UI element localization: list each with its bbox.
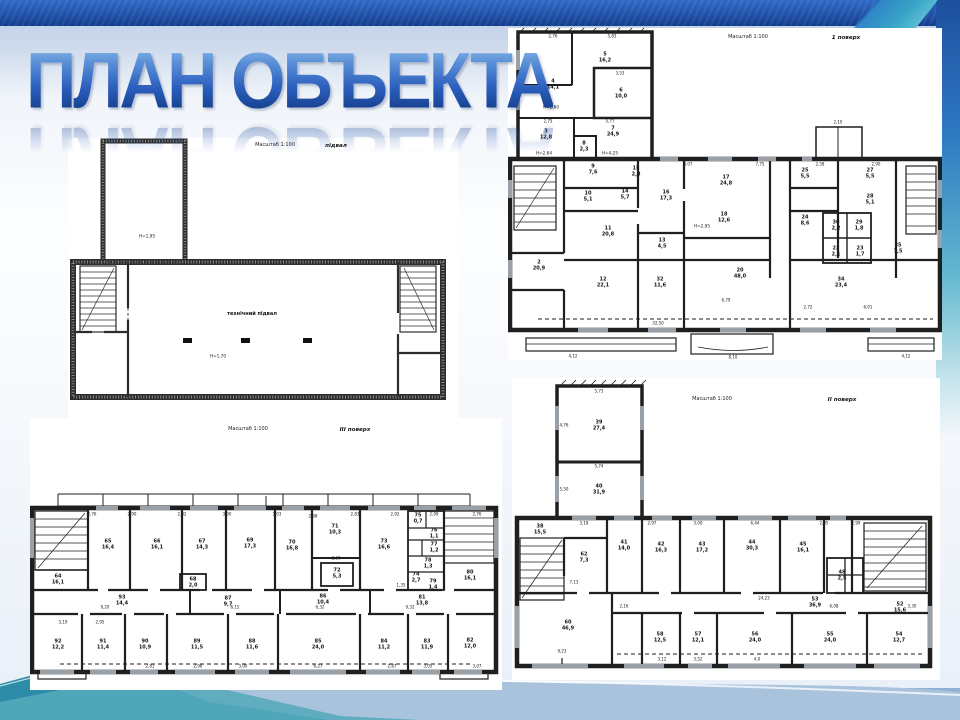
room-label: 35 7,5 bbox=[894, 243, 903, 255]
room-label: 3 12,8 bbox=[540, 129, 552, 141]
dim-label: 3,05 bbox=[424, 665, 433, 670]
room-label: 81 13,8 bbox=[416, 595, 428, 607]
room-label: 91 11,4 bbox=[97, 639, 109, 651]
height-note: Н=2,64 bbox=[536, 152, 552, 157]
room-label: 6 10,0 bbox=[615, 88, 627, 100]
room-label: 70 16,8 bbox=[286, 540, 298, 552]
room-label: 11 20,8 bbox=[602, 226, 614, 238]
room-label: 18 12,6 bbox=[718, 212, 730, 224]
floor-name-label: 1 поверх bbox=[832, 35, 861, 41]
room-label: 71 10,3 bbox=[329, 524, 341, 536]
dim-label: 3,12 bbox=[658, 658, 667, 663]
room-label: 80 16,1 bbox=[464, 570, 476, 582]
dim-label: 6,15 bbox=[231, 606, 240, 611]
floor1-plan-drawing bbox=[508, 28, 942, 360]
dim-label: 2,90 bbox=[872, 163, 881, 168]
room-label: 58 12,5 bbox=[654, 632, 666, 644]
dim-label: 2,98 bbox=[194, 665, 203, 670]
dim-label: 2,76 bbox=[473, 513, 482, 518]
floor1-plan-panel: Масштаб 1:100 1 поверх 4 14,1 5 16,2 6 1… bbox=[508, 28, 942, 360]
floor2-plan-panel: Масштаб 1:100 II поверх 39 27,4 40 31,9 … bbox=[512, 378, 940, 680]
room-label: 88 11,6 bbox=[246, 639, 258, 651]
room-label: 25 5,5 bbox=[801, 168, 810, 180]
height-note: Н=4,25 bbox=[602, 152, 618, 157]
dim-label: 24,23 bbox=[758, 597, 769, 602]
basement-plan-drawing bbox=[68, 138, 458, 420]
dim-label: 4,76 bbox=[560, 424, 569, 429]
dim-label: 3,18 bbox=[580, 522, 589, 527]
dim-label: 2,95 bbox=[96, 621, 105, 626]
dim-label: 2,97 bbox=[648, 522, 657, 527]
room-label: 41 14,0 bbox=[618, 540, 630, 552]
dim-label: 6,32 bbox=[316, 606, 325, 611]
dim-label: 2,92 bbox=[391, 513, 400, 518]
room-label: 67 14,3 bbox=[196, 539, 208, 551]
room-label: 93 14,4 bbox=[116, 595, 128, 607]
dim-label: 2,10 bbox=[834, 121, 843, 126]
room-label: технічний підвал bbox=[227, 312, 277, 318]
room-label: 32 11,6 bbox=[654, 277, 666, 289]
dim-label: 4,0 bbox=[754, 658, 760, 663]
room-label: 30 2,2 bbox=[832, 220, 841, 232]
dim-label: 9,32 bbox=[406, 606, 415, 611]
dim-label: 3,07 bbox=[684, 163, 693, 168]
room-label: 39 27,4 bbox=[593, 420, 605, 432]
dim-label: 2,76 bbox=[88, 513, 97, 518]
room-label: 13 4,5 bbox=[658, 238, 667, 250]
top-blue-band bbox=[0, 0, 960, 26]
room-label: 20 48,0 bbox=[734, 268, 746, 280]
room-label: 64 16,1 bbox=[52, 574, 64, 586]
dim-label: 6,79 bbox=[722, 299, 731, 304]
room-label: 22 2,1 bbox=[832, 246, 841, 258]
dim-label: 5,74 bbox=[595, 465, 604, 470]
room-label: 24 8,6 bbox=[801, 215, 810, 227]
dim-label: 32,50 bbox=[652, 322, 663, 327]
scale-label: Масштаб 1:100 bbox=[228, 427, 268, 433]
room-label: 17 24,8 bbox=[720, 175, 732, 187]
dim-label: 2,83 bbox=[351, 513, 360, 518]
room-label: 12 22,1 bbox=[597, 277, 609, 289]
dim-label: 2,60 bbox=[332, 557, 341, 562]
dim-label: 3,52 bbox=[694, 658, 703, 663]
dim-label: 6,27 bbox=[314, 665, 323, 670]
room-label: 68 2,0 bbox=[189, 577, 198, 589]
basement-plan-panel: Масштаб 1:100 підвал Н=1,95 технічний пі… bbox=[68, 138, 458, 420]
room-label: 15 2,8 bbox=[632, 166, 641, 178]
dim-label: 5,83 bbox=[608, 35, 617, 40]
dim-label: 4,12 bbox=[902, 355, 911, 360]
room-label: 48 2,5 bbox=[838, 570, 847, 582]
dim-label: 7,13 bbox=[570, 581, 579, 586]
scale-label: Масштаб 1:100 bbox=[692, 397, 732, 403]
room-label: 65 16,4 bbox=[102, 539, 114, 551]
dim-label: 2,16 bbox=[620, 605, 629, 610]
height-note: Н=1,95 bbox=[139, 235, 155, 240]
room-label: 79 1,4 bbox=[429, 579, 438, 591]
slide-title: ПЛАН ОБЪЕКТА bbox=[26, 36, 553, 126]
room-label: 57 12,1 bbox=[692, 632, 704, 644]
scale-label: Масштаб 1:100 bbox=[728, 35, 768, 41]
dim-label: 2,99 bbox=[852, 522, 861, 527]
dim-label: 2,99 bbox=[430, 513, 439, 518]
floor2-plan-drawing bbox=[512, 378, 940, 680]
room-label: 54 12,7 bbox=[893, 632, 905, 644]
dim-label: 3,03 bbox=[273, 513, 282, 518]
room-label: 76 1,1 bbox=[430, 528, 439, 540]
room-label: 23 1,7 bbox=[856, 246, 865, 258]
room-label: 75 0,7 bbox=[414, 513, 423, 525]
room-label: 85 24,0 bbox=[312, 639, 324, 651]
floor-name-label: підвал bbox=[325, 143, 347, 149]
floor3-plan-panel: Масштаб 1:100 III поверх 64 16,1 65 16,4… bbox=[30, 418, 502, 690]
room-label: 90 10,9 bbox=[139, 639, 151, 651]
room-label: 62 7,3 bbox=[580, 552, 589, 564]
height-note: Н=1,70 bbox=[210, 355, 226, 360]
room-label: 89 11,5 bbox=[191, 639, 203, 651]
room-label: 16 17,3 bbox=[660, 190, 672, 202]
room-label: 83 11,9 bbox=[421, 639, 433, 651]
dim-label: 4,12 bbox=[569, 355, 578, 360]
dim-label: 2,87 bbox=[388, 665, 397, 670]
presentation-slide: ПЛАН ОБЪЕКТА bbox=[0, 0, 960, 720]
dim-label: 3,19 bbox=[59, 621, 68, 626]
dim-label: 2,95 bbox=[820, 522, 829, 527]
room-label: 45 16,1 bbox=[797, 542, 809, 554]
room-label: 44 30,3 bbox=[746, 540, 758, 552]
room-label: 14 5,7 bbox=[621, 189, 630, 201]
room-label: 38 15,5 bbox=[534, 524, 546, 536]
room-label: 8 2,3 bbox=[580, 141, 589, 153]
dim-label: 3,00 bbox=[694, 522, 703, 527]
room-label: 77 1,2 bbox=[430, 542, 439, 554]
room-label: 42 16,3 bbox=[655, 542, 667, 554]
floor-name-label: II поверх bbox=[828, 397, 857, 403]
room-label: 9 7,6 bbox=[589, 164, 598, 176]
room-label: 84 11,2 bbox=[378, 639, 390, 651]
dim-label: 3,00 bbox=[239, 665, 248, 670]
room-label: 69 17,3 bbox=[244, 538, 256, 550]
dim-label: 8,10 bbox=[729, 356, 738, 361]
dim-label: 3,00 bbox=[223, 513, 232, 518]
scale-label: Масштаб 1:100 bbox=[255, 143, 295, 149]
dim-label: 2,81 bbox=[146, 665, 155, 670]
dim-label: 9,20 bbox=[101, 606, 110, 611]
room-label: 73 16,6 bbox=[378, 539, 390, 551]
dim-label: 5,50 bbox=[560, 488, 569, 493]
dim-label: 5,73 bbox=[595, 390, 604, 395]
room-label: 82 12,0 bbox=[464, 638, 476, 650]
room-label: 52 15,6 bbox=[894, 602, 906, 614]
dim-label: 7,75 bbox=[756, 163, 765, 168]
dim-label: 5,77 bbox=[606, 120, 615, 125]
height-note: Н=2,95 bbox=[694, 225, 710, 230]
dim-label: 2,72 bbox=[804, 306, 813, 311]
dim-label: 3,07 bbox=[473, 665, 482, 670]
dim-label: 3,53 bbox=[616, 72, 625, 77]
room-label: 74 2,7 bbox=[412, 572, 421, 584]
dim-label: 6,08 bbox=[830, 605, 839, 610]
room-label: 60 46,9 bbox=[562, 620, 574, 632]
floor-name-label: III поверх bbox=[340, 427, 371, 433]
room-label: 66 16,1 bbox=[151, 539, 163, 551]
room-label: 43 17,2 bbox=[696, 542, 708, 554]
dim-label: 6,44 bbox=[751, 522, 760, 527]
room-label: 28 5,1 bbox=[866, 194, 875, 206]
room-label: 10 5,1 bbox=[584, 191, 593, 203]
room-label: 72 5,3 bbox=[333, 568, 342, 580]
room-label: 56 24,0 bbox=[749, 632, 761, 644]
room-label: 78 1,3 bbox=[424, 558, 433, 570]
room-label: 34 23,4 bbox=[835, 277, 847, 289]
room-label: 5 16,2 bbox=[599, 52, 611, 64]
room-label: 40 31,9 bbox=[593, 484, 605, 496]
room-label: 92 12,2 bbox=[52, 639, 64, 651]
room-label: 2 20,9 bbox=[533, 260, 545, 272]
dim-label: 3,30 bbox=[908, 605, 917, 610]
dim-label: 1,35 bbox=[397, 584, 406, 589]
room-label: 29 1,8 bbox=[855, 220, 864, 232]
dim-label: 2,58 bbox=[816, 163, 825, 168]
room-label: 7 24,9 bbox=[607, 126, 619, 138]
dim-label: 2,90 bbox=[128, 513, 137, 518]
room-label: 27 5,5 bbox=[866, 168, 875, 180]
room-label: 53 36,9 bbox=[809, 597, 821, 609]
dim-label: 2,98 bbox=[309, 515, 318, 520]
dim-label: 9,23 bbox=[558, 650, 567, 655]
room-label: 55 24,0 bbox=[824, 632, 836, 644]
dim-label: 6,01 bbox=[864, 306, 873, 311]
dim-label: 2,82 bbox=[178, 513, 187, 518]
